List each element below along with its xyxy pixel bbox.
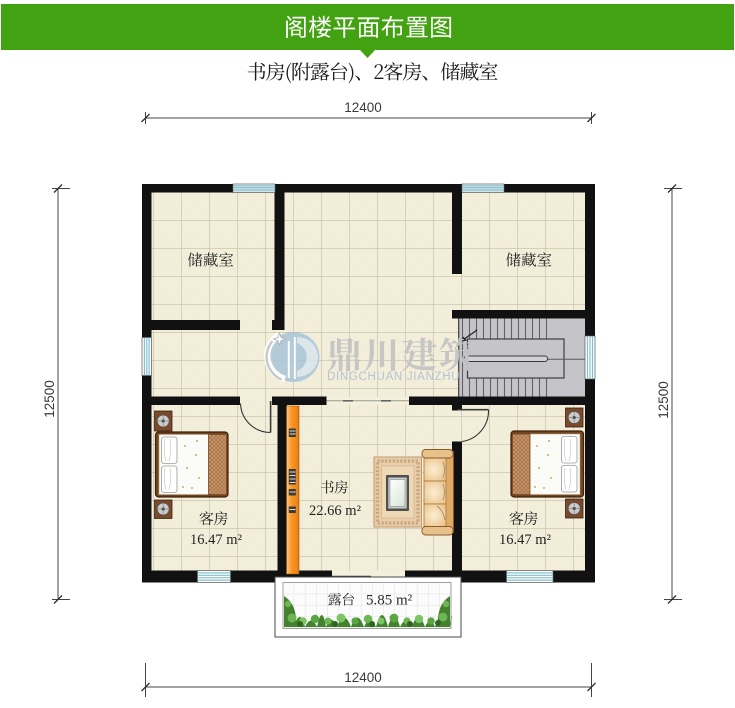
svg-text:12500: 12500 — [42, 380, 57, 418]
svg-text:12400: 12400 — [344, 100, 382, 115]
svg-text:5.85 m²: 5.85 m² — [366, 593, 413, 609]
svg-text:22.66 m²: 22.66 m² — [309, 503, 362, 519]
svg-text:12500: 12500 — [656, 381, 671, 419]
svg-text:16.47 m²: 16.47 m² — [499, 532, 552, 548]
svg-text:DINGCHUAN JIANZHU: DINGCHUAN JIANZHU — [327, 371, 460, 383]
svg-text:12400: 12400 — [344, 670, 382, 685]
svg-text:16.47 m²: 16.47 m² — [190, 532, 243, 548]
